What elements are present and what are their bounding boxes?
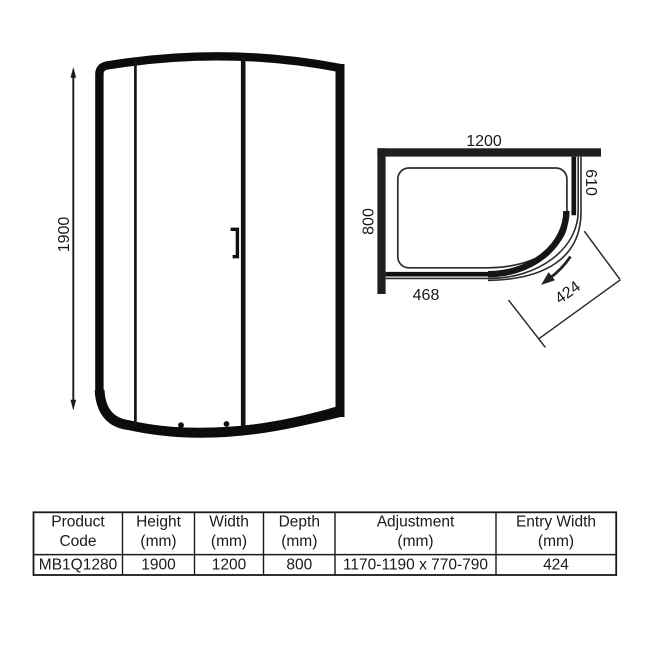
svg-text:1900: 1900 — [56, 217, 73, 253]
svg-text:(mm): (mm) — [211, 533, 247, 550]
svg-text:(mm): (mm) — [538, 533, 574, 550]
svg-text:610: 610 — [582, 169, 599, 196]
svg-text:Height: Height — [136, 514, 181, 531]
svg-text:800: 800 — [286, 557, 312, 574]
svg-text:Adjustment: Adjustment — [377, 514, 455, 531]
svg-text:1200: 1200 — [466, 133, 502, 150]
svg-text:Code: Code — [59, 533, 96, 550]
svg-text:(mm): (mm) — [397, 533, 433, 550]
svg-text:Entry Width: Entry Width — [516, 514, 596, 531]
svg-text:Product: Product — [51, 514, 105, 531]
svg-text:Width: Width — [209, 514, 249, 531]
svg-text:(mm): (mm) — [140, 533, 176, 550]
svg-text:1200: 1200 — [212, 557, 247, 574]
svg-text:800: 800 — [361, 208, 378, 235]
svg-text:MB1Q1280: MB1Q1280 — [39, 557, 118, 574]
svg-text:1170-1190 x 770-790: 1170-1190 x 770-790 — [343, 557, 488, 574]
svg-text:(mm): (mm) — [281, 533, 317, 550]
svg-text:424: 424 — [543, 557, 569, 574]
svg-text:468: 468 — [413, 287, 440, 304]
svg-text:Depth: Depth — [279, 514, 320, 531]
svg-text:1900: 1900 — [141, 557, 176, 574]
